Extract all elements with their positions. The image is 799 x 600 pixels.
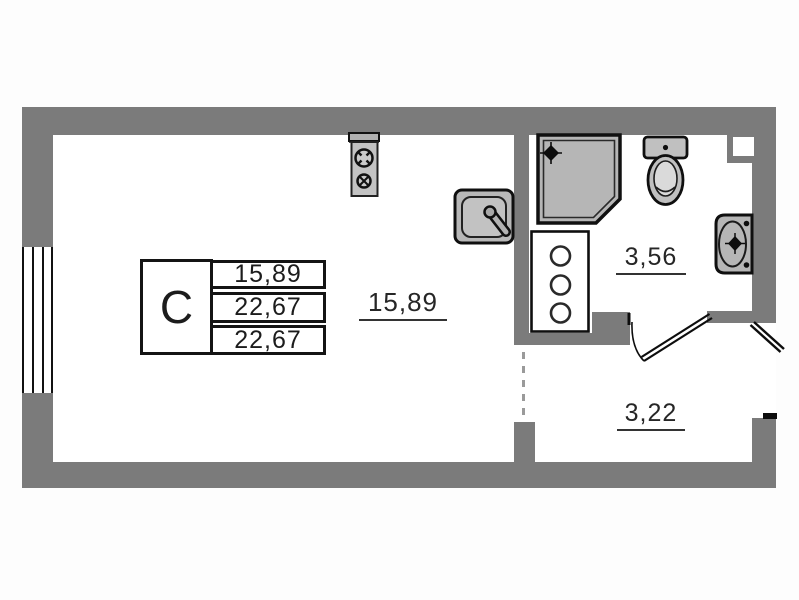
unit-area-value-2: 22,67: [210, 292, 326, 323]
bathroom-door: [612, 303, 722, 369]
wall-right-lower: [752, 418, 776, 488]
bathroom-area-label: 3,56: [616, 243, 686, 275]
entrance-door: [742, 312, 799, 360]
room-boundary-dashed-line: [522, 352, 525, 422]
unit-type-letter: С: [140, 259, 213, 355]
stove-icon: [346, 130, 384, 200]
wall-bathroom-bottom-left: [514, 333, 598, 345]
window-frame-line: [51, 247, 53, 393]
living-room-area-label: 15,89: [359, 287, 447, 321]
hallway-area-label: 3,22: [617, 399, 685, 431]
toilet-icon: [641, 134, 691, 208]
wall-bottom: [22, 462, 776, 488]
unit-info-table: С 15,89 22,67 22,67: [140, 259, 326, 355]
shower-icon: [535, 132, 625, 226]
wall-top: [22, 107, 776, 135]
window-frame-line: [42, 247, 44, 393]
unit-area-value-3: 22,67: [210, 325, 326, 355]
unit-area-value-1: 15,89: [210, 260, 326, 289]
washbasin-icon: [713, 212, 755, 276]
window: [22, 247, 53, 393]
floor-plan: 15,89 3,56 3,22 С 15,89 22,67 22,67: [0, 0, 799, 600]
wall-bathroom-divider: [514, 135, 529, 345]
kitchen-sink-icon: [452, 187, 516, 247]
wall-hall-stub: [514, 422, 535, 462]
window-frame-line: [22, 247, 24, 393]
cabinet-icon: [529, 229, 591, 334]
entrance-door-jamb: [763, 413, 777, 419]
vent-shaft-opening: [733, 137, 754, 156]
window-frame-line: [32, 247, 34, 393]
wall-left-upper: [22, 107, 53, 247]
